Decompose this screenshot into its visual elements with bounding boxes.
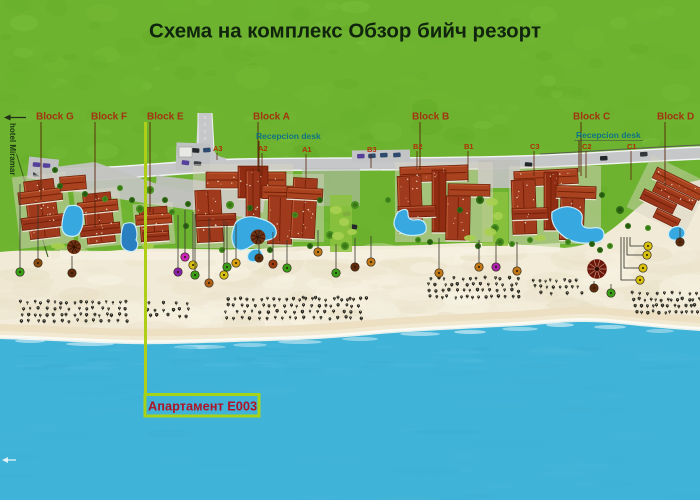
svg-text:B2: B2: [413, 142, 423, 151]
svg-text:C3: C3: [530, 142, 540, 151]
svg-text:Block D: Block D: [657, 112, 694, 123]
svg-text:Block B: Block B: [412, 112, 449, 123]
svg-text:B3: B3: [367, 145, 377, 154]
svg-text:Recepcion desk: Recepcion desk: [576, 130, 641, 140]
svg-text:Block E: Block E: [147, 112, 184, 123]
svg-text:Block A: Block A: [253, 112, 290, 123]
svg-text:A3: A3: [213, 144, 223, 153]
svg-text:Recepcion desk: Recepcion desk: [256, 131, 321, 141]
svg-text:B1: B1: [464, 142, 474, 151]
svg-text:Block F: Block F: [91, 112, 127, 123]
svg-text:hotel Miramar: hotel Miramar: [8, 123, 17, 175]
svg-text:C1: C1: [627, 142, 637, 151]
svg-text:Block G: Block G: [36, 112, 74, 123]
svg-text:Block C: Block C: [573, 112, 610, 123]
svg-text:Апартамент E003: Апартамент E003: [148, 399, 257, 414]
svg-text:C2: C2: [582, 142, 592, 151]
svg-text:Схема на комплекс Обзор бийч р: Схема на комплекс Обзор бийч резорт: [149, 20, 541, 43]
svg-text:A1: A1: [302, 145, 312, 154]
